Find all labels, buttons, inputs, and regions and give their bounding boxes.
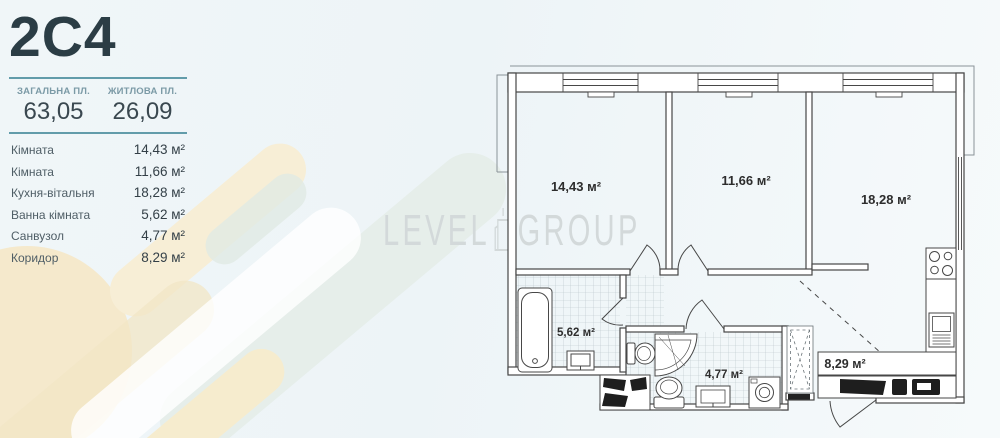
plan-room-area-label: 4,77 м² xyxy=(705,369,743,381)
total-area-stat: ЗАГАЛЬНА ПЛ. 63,05 xyxy=(9,86,98,126)
room-name: Коридор xyxy=(11,251,58,265)
divider xyxy=(9,132,187,134)
room-area: 14,43 м² xyxy=(134,142,185,157)
bathtub xyxy=(518,288,552,372)
room-name: Кімната xyxy=(11,143,54,157)
washing-machine xyxy=(749,377,780,408)
room-row: Кімната 14,43 м² xyxy=(11,142,185,157)
room-area: 11,66 м² xyxy=(135,164,185,179)
wardrobe xyxy=(787,326,813,400)
total-area-label: ЗАГАЛЬНА ПЛ. xyxy=(9,86,98,97)
apartment-info-panel: 2C4 ЗАГАЛЬНА ПЛ. 63,05 ЖИТЛОВА ПЛ. 26,09… xyxy=(9,0,187,271)
room-name: Кухня-вітальня xyxy=(11,186,95,200)
plan-room-area-label: 11,66 м² xyxy=(721,173,771,188)
area-stats: ЗАГАЛЬНА ПЛ. 63,05 ЖИТЛОВА ПЛ. 26,09 xyxy=(9,82,187,129)
total-area-value: 63,05 xyxy=(9,98,98,126)
living-area-stat: ЖИТЛОВА ПЛ. 26,09 xyxy=(98,86,187,126)
plan-room-area-label: 14,43 м² xyxy=(551,179,602,194)
bathroom-sink xyxy=(567,351,594,370)
room-area: 18,28 м² xyxy=(134,185,185,200)
room-row: Ванна кімната 5,62 м² xyxy=(11,207,185,222)
floor-plan: 14,43 м² 11,66 м² 18,28 м² 5,62 м² 4,77 … xyxy=(488,60,998,438)
room-area: 8,29 м² xyxy=(141,250,185,265)
listing-card: { "sidebar": { "title": "2C4", "stats": … xyxy=(0,0,1000,438)
plumbing-shaft xyxy=(600,375,650,410)
room-row: Кухня-вітальня 18,28 м² xyxy=(11,185,185,200)
stove xyxy=(926,248,956,279)
room-list: Кімната 14,43 м² Кімната 11,66 м² Кухня-… xyxy=(9,142,187,265)
room-name: Кімната xyxy=(11,165,54,179)
plan-room-area-label: 5,62 м² xyxy=(557,327,595,339)
divider xyxy=(9,77,187,79)
room-area: 4,77 м² xyxy=(141,228,185,243)
room-row: Коридор 8,29 м² xyxy=(11,250,185,265)
windows xyxy=(563,73,962,250)
toilet-front xyxy=(654,377,684,408)
plan-room-area-label: 8,29 м² xyxy=(824,357,865,371)
watermark-text-left: LEVEL xyxy=(383,209,490,253)
oven xyxy=(929,313,954,347)
room-name: Санвузол xyxy=(11,229,64,243)
toilet-side xyxy=(627,343,655,364)
room-row: Санвузол 4,77 м² xyxy=(11,228,185,243)
living-area-label: ЖИТЛОВА ПЛ. xyxy=(98,86,187,97)
room-row: Кімната 11,66 м² xyxy=(11,164,185,179)
room-name: Ванна кімната xyxy=(11,208,90,222)
apartment-code-title: 2C4 xyxy=(9,0,187,74)
room-area: 5,62 м² xyxy=(141,207,185,222)
wc-sink xyxy=(696,386,730,407)
living-area-value: 26,09 xyxy=(98,98,187,126)
plan-room-area-label: 18,28 м² xyxy=(861,192,912,207)
